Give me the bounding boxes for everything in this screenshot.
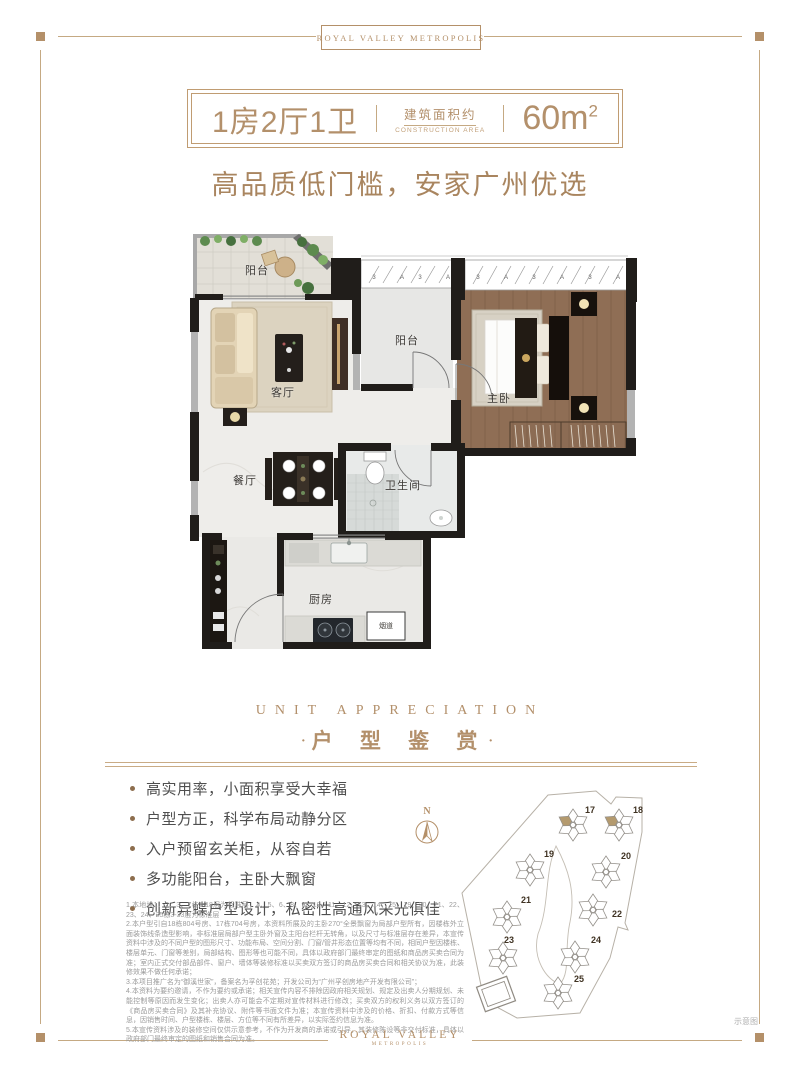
building-cluster-20	[589, 856, 622, 888]
section-title-en: UNIT APPRECIATION	[0, 703, 800, 719]
amenity-building	[477, 976, 516, 1011]
compass-icon	[414, 817, 440, 847]
disclaimer-line: 3.本项目推广名为“御溪世家”，备案名为孚创花苑；开发公司为“广州孚创房地产开发…	[126, 978, 464, 988]
label-flue: 烟道	[379, 621, 393, 631]
compass: N	[413, 806, 441, 852]
building-cluster-23	[486, 942, 519, 974]
frame-corner-top-right	[755, 32, 764, 41]
floor-lamp	[223, 408, 247, 426]
bathroom-sink	[430, 510, 452, 526]
window-mark: A	[504, 275, 508, 281]
toilet	[364, 452, 386, 484]
tv-console	[332, 318, 348, 390]
sofa	[211, 308, 257, 408]
area-label-en: CONSTRUCTION AREA	[395, 127, 485, 134]
frame-line-top-right	[484, 36, 742, 37]
section-dot-right: ·	[488, 734, 499, 749]
disclaimer-line: 4.本资料为要约邀请，不作为要约或承诺；相关宣传内容不排除因政府相关规划、规定及…	[126, 987, 464, 1025]
title-divider-2	[503, 105, 504, 132]
building-cluster-22	[576, 894, 609, 926]
feature-text: 多功能阳台，主卧大飘窗	[146, 868, 317, 889]
title-divider-1	[376, 105, 377, 132]
building-number: 19	[544, 849, 554, 859]
dining-set	[265, 452, 341, 506]
footer-brand-line1: ROYAL VALLEY	[0, 1029, 800, 1041]
label-living-room: 客厅	[271, 384, 295, 400]
building-number: 22	[612, 909, 622, 919]
bed	[485, 316, 569, 400]
area-label-cn: 建筑面积约	[404, 104, 477, 126]
frame-corner-top-left	[36, 32, 45, 41]
unit-area-value: 60m2	[522, 99, 598, 138]
window-mark: A	[616, 275, 620, 281]
site-map: 171819202122232425	[452, 786, 762, 1022]
unit-title-box: 1房2厅1卫 建筑面积约 CONSTRUCTION AREA 60m2	[187, 89, 623, 148]
disclaimer-line: 1.本地块1、2、3、7栋2-18层为标准层，4、5、6、8、9、10、11、1…	[126, 901, 464, 920]
label-master-bedroom: 主卧	[487, 390, 511, 406]
section-title-cn: ·户 型 鉴 赏·	[0, 725, 800, 755]
living-room	[211, 302, 348, 426]
section-double-rule	[105, 762, 697, 767]
area-sup: 2	[588, 102, 597, 121]
building-core	[528, 868, 533, 873]
building-number: 24	[591, 935, 601, 945]
building-cluster-18	[602, 809, 635, 841]
building-cluster-19	[513, 854, 546, 886]
feature-text: 高实用率，小面积享受大幸福	[146, 778, 348, 799]
feature-item: 多功能阳台，主卧大飘窗	[130, 868, 460, 889]
header-brand-text: ROYAL VALLEY METROPOLIS	[317, 33, 486, 43]
building-core	[501, 956, 506, 961]
wardrobe	[510, 422, 626, 450]
footer-brand: ROYAL VALLEY METROPOLIS	[0, 1029, 800, 1047]
building-core	[571, 823, 576, 828]
building-number: 23	[504, 935, 514, 945]
building-core	[505, 915, 510, 920]
building-number: 21	[521, 895, 531, 905]
hallway-floor	[356, 388, 457, 445]
feature-text: 户型方正，科学布局动静分区	[146, 808, 348, 829]
section-dot-left: ·	[301, 734, 312, 749]
label-bathroom: 卫生间	[385, 477, 421, 493]
entry-cabinet	[210, 540, 227, 644]
construction-area-label: 建筑面积约 CONSTRUCTION AREA	[395, 104, 485, 134]
stove	[313, 618, 353, 643]
building-core	[591, 908, 596, 913]
coffee-table	[275, 334, 303, 382]
disclaimer: 1.本地块1、2、3、7栋2-18层为标准层，4、5、6、8、9、10、11、1…	[126, 901, 464, 1045]
building-number: 18	[633, 805, 643, 815]
bullet-dot	[130, 846, 135, 851]
bullet-dot	[130, 816, 135, 821]
feature-item: 高实用率，小面积享受大幸福	[130, 778, 460, 799]
building-number: 17	[585, 805, 595, 815]
area-number: 60m	[522, 99, 588, 137]
window-mark: A	[446, 275, 450, 281]
footer-brand-line2: METROPOLIS	[0, 1042, 800, 1047]
building-number: 20	[621, 851, 631, 861]
label-balcony-mid: 阳台	[395, 332, 419, 348]
building-core	[617, 823, 622, 828]
label-balcony-top: 阳台	[245, 262, 269, 278]
building-core	[556, 991, 561, 996]
label-dining-room: 餐厅	[233, 472, 257, 488]
disclaimer-line: 2.本户型引自18栋804号房、17栋704号房，本资料所展及的主卧270°全景…	[126, 920, 464, 978]
header-brand-box: ROYAL VALLEY METROPOLIS	[321, 25, 481, 50]
bullet-dot	[130, 786, 135, 791]
map-note: 示意图	[648, 1016, 758, 1027]
building-number: 25	[574, 974, 584, 984]
floorplan-drawing: 3A3A3A3A3A	[185, 222, 645, 672]
compass-n-label: N	[413, 806, 441, 817]
building-core	[604, 870, 609, 875]
floorplan: 3A3A3A3A3A	[185, 222, 645, 672]
window-mark: A	[560, 275, 564, 281]
frame-line-top-left	[58, 36, 316, 37]
building-core	[573, 955, 578, 960]
window-mark: A	[400, 275, 404, 281]
label-kitchen: 厨房	[309, 591, 333, 607]
feature-item: 入户预留玄关柜，从容自若	[130, 838, 460, 859]
bullet-dot	[130, 876, 135, 881]
section-cn-text: 户 型 鉴 赏	[312, 729, 489, 753]
building-cluster-21	[490, 901, 523, 933]
feature-text: 入户预留玄关柜，从容自若	[146, 838, 332, 859]
building-cluster-25	[541, 977, 574, 1009]
slogan: 高品质低门槛，安家广州优选	[0, 163, 800, 202]
building-cluster-24	[558, 941, 591, 973]
unit-layout: 1房2厅1卫	[212, 97, 358, 141]
feature-item: 户型方正，科学布局动静分区	[130, 808, 460, 829]
